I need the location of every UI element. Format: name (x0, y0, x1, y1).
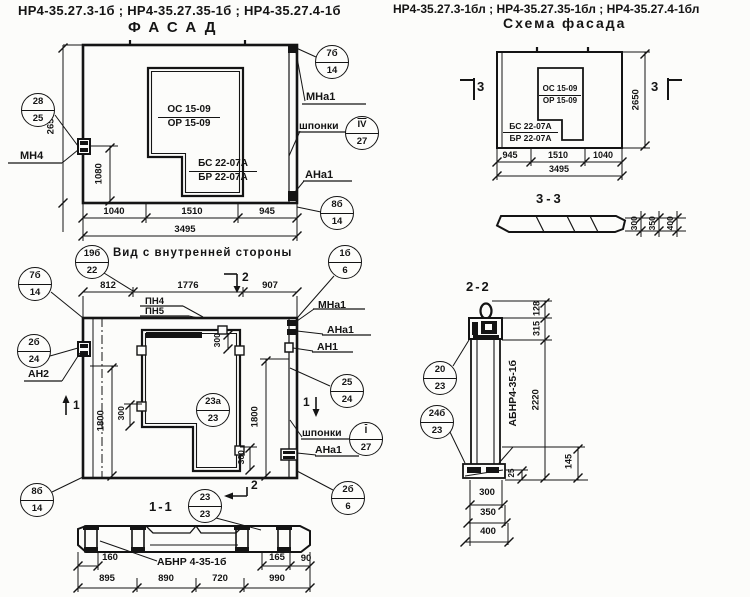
innerview-section2-mark-top: 2 (242, 271, 249, 284)
facade-label-mn4: МН4 (20, 151, 43, 163)
codes-left: НР4-35.27.3-1б ; НР4-35.27.35-1б ; НР4-3… (18, 4, 341, 18)
section22-dim-350: 350 (471, 508, 505, 518)
facade-callout-shponki: IV 27 (345, 116, 379, 150)
innerview-dim-300-top: 300 (213, 328, 222, 352)
section22-title: 2-2 (466, 280, 491, 294)
scheme-sill-mark: БС 22-07А БР 22-07А (503, 121, 558, 143)
section22-dim-145: 145 (565, 450, 574, 474)
innerview-label-shponki: шпонки (302, 428, 342, 439)
facade-label-shponki: шпонки (299, 121, 339, 132)
innerview-label-an1: АН1 (317, 342, 338, 353)
section22-dim-400: 400 (469, 527, 507, 537)
section11-panel-mark: АБНР 4-35-1б (157, 557, 226, 568)
facade-label-mna1: МНа1 (306, 92, 335, 104)
scheme-section-mark-right: 3 (651, 80, 658, 94)
innerview-callout-shponki: I 27 (349, 422, 383, 456)
innerview-dim-812: 812 (83, 281, 133, 291)
scheme-section-mark-left: 3 (477, 80, 484, 94)
facade-dim-3: 945 (242, 207, 292, 217)
scheme-opening-mark-bottom: ОР 15-09 (539, 96, 581, 106)
section11-dim-160: 160 (96, 553, 124, 563)
scheme-dim-total: 3495 (538, 165, 580, 174)
section11-callout-2323: 23 23 (188, 489, 222, 523)
innerview-callout-7b14: 7б 14 (18, 267, 52, 301)
innerview-dim-1800-right: 1800 (250, 400, 260, 434)
scheme-linework (460, 47, 682, 181)
facade-callout-7b14: 7б 14 (315, 45, 349, 79)
facade-dim-total: 3495 (160, 225, 210, 235)
section11-title: 1-1 (149, 500, 174, 514)
scheme-opening-mark: ОС 15-09 ОР 15-09 (539, 84, 581, 105)
innerview-callout-8b14: 8б 14 (20, 483, 54, 517)
facade-opening-mark: ОС 15-09 ОР 15-09 (158, 104, 220, 130)
section11-dim-890: 890 (141, 574, 191, 584)
drawing-canvas: НР4-35.27.3-1б ; НР4-35.27.35-1б ; НР4-3… (0, 0, 750, 597)
facade-title: ФАСАД (128, 20, 223, 36)
innerview-label-ana1-top: АНа1 (327, 325, 354, 336)
section11-dim-165: 165 (263, 553, 291, 563)
innerview-callout-1b6: 1б 6 (328, 245, 362, 279)
facade-dim-1: 1040 (89, 207, 139, 217)
section22-callout-2023: 20 23 (423, 361, 457, 395)
section33-dim-300: 300 (630, 211, 639, 235)
innerview-callout-2b24: 2б 24 (17, 334, 51, 368)
section33-dim-350: 350 (648, 211, 657, 235)
section11-dim-990: 990 (252, 574, 302, 584)
section11-dim-90: 90 (293, 554, 319, 564)
innerview-section1-mark-right: 1 (303, 396, 310, 409)
innerview-label-ana1-bottom: АНа1 (315, 445, 342, 456)
innerview-section1-mark-left: 1 (73, 399, 80, 412)
innerview-label-pn5: ПН5 (145, 307, 164, 317)
innerview-callout-23a23: 23а 23 (196, 393, 230, 427)
innerview-section2-mark-bottom: 2 (251, 479, 258, 492)
codes-right: НР4-35.27.3-1бл ; НР4-35.27.35-1бл ; НР4… (393, 3, 699, 16)
section33-linework (497, 211, 686, 237)
facade-callout-2825: 28 25 (21, 93, 55, 127)
section22-callout-24b23: 24б 23 (420, 405, 454, 439)
innerview-dim-1800-left: 1800 (96, 404, 106, 438)
section33-dim-400: 400 (666, 211, 675, 235)
facade-sill-mark-bottom: БР 22-07А (189, 172, 257, 184)
scheme-dim-2: 1510 (537, 151, 579, 160)
facade-label-ana1: АНа1 (305, 170, 333, 182)
facade-opening-mark-top: ОС 15-09 (158, 104, 220, 118)
facade-dim-inner: 1080 (94, 159, 104, 189)
innerview-callout-2b6: 2б 6 (331, 481, 365, 515)
scheme-dim-1: 945 (489, 151, 531, 160)
section33-title: 3-3 (536, 192, 564, 206)
innerview-dim-300-left: 300 (117, 401, 126, 425)
section22-dim-315: 315 (533, 317, 542, 341)
section11-dim-720: 720 (195, 574, 245, 584)
innerview-dim-300-bottom: 300 (237, 445, 246, 469)
section22-dim-2220: 2220 (531, 383, 541, 417)
section22-panel-mark: АБНР4-35-1б (508, 347, 519, 439)
facade-opening-mark-bottom: ОР 15-09 (158, 118, 220, 130)
section11-dim-895: 895 (82, 574, 132, 584)
innerview-title: Вид с внутренней стороны (113, 247, 292, 259)
facade-dim-2: 1510 (167, 207, 217, 217)
scheme-sill-mark-bottom: БР 22-07А (503, 133, 558, 143)
scheme-title: Схема фасада (503, 16, 626, 31)
innerview-callout-19b22: 19б 22 (75, 245, 109, 279)
innerview-dim-907: 907 (245, 281, 295, 291)
innerview-label-an2: АН2 (28, 369, 49, 380)
facade-callout-8b14: 8б 14 (320, 196, 354, 230)
scheme-sill-mark-top: БС 22-07А (503, 121, 558, 133)
scheme-dim-3: 1040 (582, 151, 624, 160)
scheme-opening-mark-top: ОС 15-09 (539, 84, 581, 96)
section22-dim-300: 300 (471, 488, 503, 498)
facade-sill-mark-top: БС 22-07А (189, 158, 257, 172)
innerview-callout-2524: 25 24 (330, 374, 364, 408)
section22-dim-25: 25 (508, 463, 516, 483)
facade-sill-mark: БС 22-07А БР 22-07А (189, 158, 257, 184)
innerview-label-mna1: МНа1 (318, 300, 346, 311)
innerview-dim-1776: 1776 (163, 281, 213, 291)
scheme-dim-height: 2650 (631, 80, 641, 120)
